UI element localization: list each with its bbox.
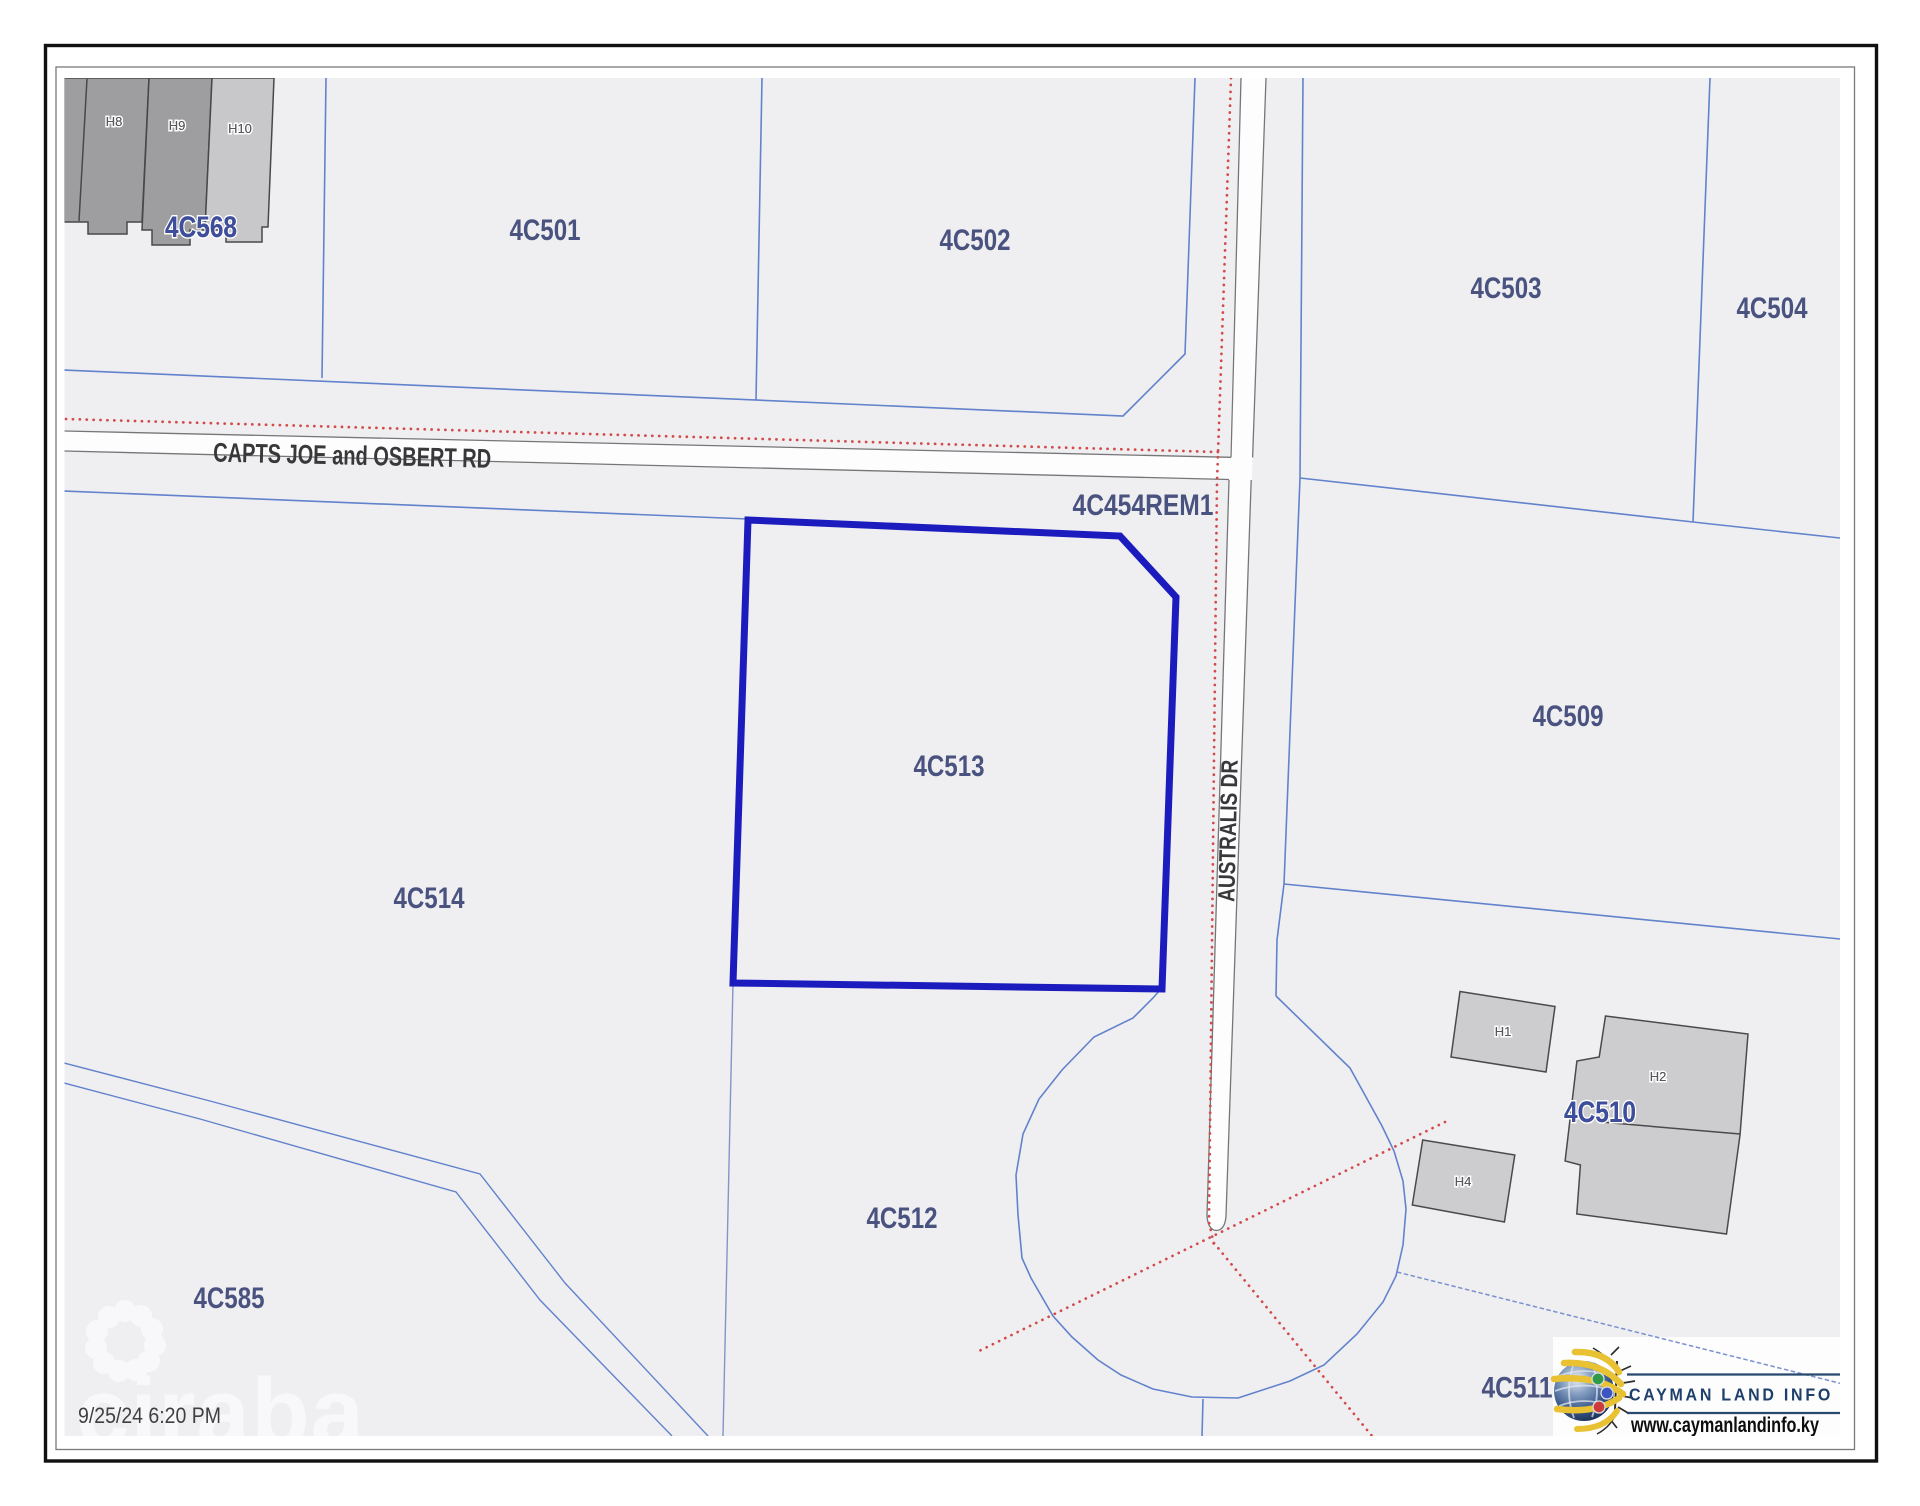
svg-text:4C511: 4C511 [1482,1372,1553,1405]
svg-text:H8: H8 [106,114,123,129]
svg-text:4C454REM1: 4C454REM1 [1073,489,1214,522]
svg-text:4C512: 4C512 [867,1202,938,1235]
svg-text:4C504: 4C504 [1737,292,1808,325]
svg-text:4C513: 4C513 [914,750,985,783]
svg-text:CAPTS JOE and OSBERT RD: CAPTS JOE and OSBERT RD [213,438,492,474]
svg-text:4C514: 4C514 [394,882,465,915]
svg-text:9/25/24 6:20 PM: 9/25/24 6:20 PM [78,1403,221,1428]
svg-text:4C510: 4C510 [1564,1096,1636,1129]
svg-text:H1: H1 [1495,1024,1512,1039]
svg-text:4C509: 4C509 [1533,700,1604,733]
svg-text:4C568: 4C568 [165,211,237,244]
svg-text:CAYMAN LAND INFO: CAYMAN LAND INFO [1629,1385,1833,1405]
svg-text:4C502: 4C502 [940,224,1011,257]
svg-text:4C585: 4C585 [194,1282,265,1315]
svg-text:H10: H10 [228,121,252,136]
svg-text:H2: H2 [1650,1069,1667,1084]
svg-text:H9: H9 [169,118,186,133]
svg-text:www.caymanlandinfo.ky: www.caymanlandinfo.ky [1630,1414,1819,1437]
svg-text:AUSTRALIS DR: AUSTRALIS DR [1213,759,1242,902]
svg-text:4C501: 4C501 [510,214,581,247]
svg-text:H4: H4 [1455,1174,1472,1189]
svg-text:4C503: 4C503 [1471,272,1542,305]
